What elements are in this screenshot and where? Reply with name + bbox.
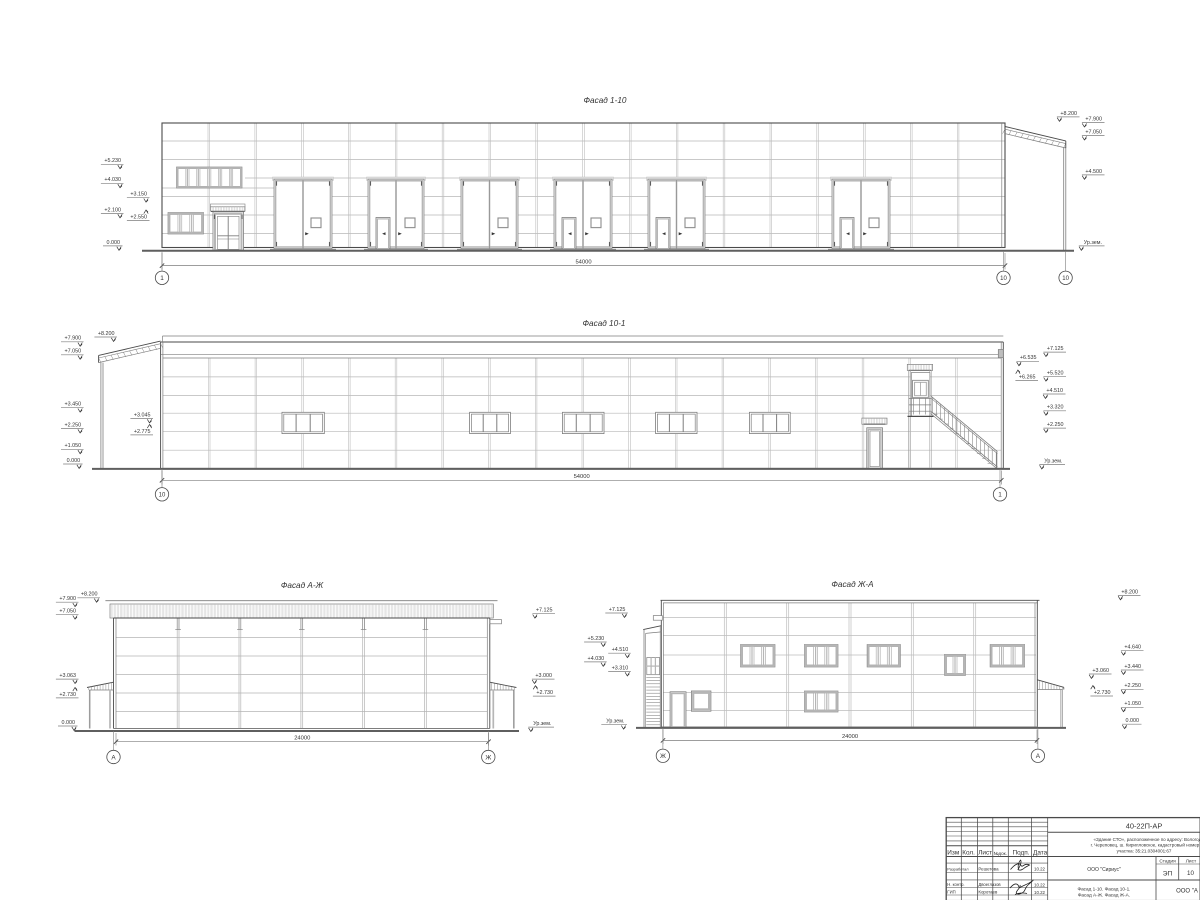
svg-text:+7.900: +7.900 [64, 336, 81, 342]
svg-text:Ур.зем.: Ур.зем. [606, 719, 624, 725]
svg-text:Изм: Изм [947, 849, 959, 856]
svg-text:+3.320: +3.320 [1047, 405, 1064, 411]
svg-text:10.22: 10.22 [1034, 890, 1046, 895]
svg-text:Лист: Лист [1186, 858, 1197, 864]
svg-text:10: 10 [1062, 276, 1069, 282]
svg-text:А: А [111, 754, 116, 761]
svg-text:г. Череповец, ш. Кирилловское,: г. Череповец, ш. Кирилловское, кадастров… [1091, 842, 1200, 848]
svg-text:+3.060: +3.060 [1092, 668, 1109, 674]
svg-text:+2.250: +2.250 [1124, 683, 1141, 689]
svg-text:54000: 54000 [575, 259, 591, 265]
svg-text:+2.730: +2.730 [59, 692, 76, 698]
svg-text:№док.: №док. [994, 851, 1007, 856]
svg-text:+7.125: +7.125 [536, 608, 553, 614]
svg-text:Фасад А-Ж: Фасад А-Ж [281, 581, 324, 590]
svg-text:+7.050: +7.050 [1085, 130, 1102, 136]
svg-text:+8.200: +8.200 [81, 592, 98, 598]
svg-text:ООО "А: ООО "А [1176, 888, 1198, 894]
svg-text:0.000: 0.000 [107, 240, 121, 246]
svg-text:24000: 24000 [842, 734, 858, 740]
svg-text:ЭП: ЭП [1163, 870, 1173, 877]
svg-text:+7.050: +7.050 [59, 609, 76, 615]
svg-text:Ж: Ж [660, 753, 666, 760]
svg-text:Ур.зем.: Ур.зем. [1084, 240, 1102, 246]
svg-text:+5.230: +5.230 [104, 158, 121, 164]
svg-text:Ур.зем.: Ур.зем. [533, 721, 551, 727]
svg-text:Н. контр.: Н. контр. [947, 882, 964, 887]
svg-text:Стадия: Стадия [1159, 858, 1176, 864]
svg-text:Фасад 10-1: Фасад 10-1 [583, 319, 626, 328]
svg-text:+6.265: +6.265 [1019, 374, 1036, 380]
svg-text:+7.125: +7.125 [1047, 346, 1064, 352]
svg-text:10.22: 10.22 [1034, 867, 1046, 872]
svg-text:+4.500: +4.500 [1085, 169, 1102, 175]
svg-text:+2.250: +2.250 [64, 422, 81, 428]
svg-text:10: 10 [1000, 276, 1007, 282]
svg-text:Фасад Ж-А: Фасад Ж-А [831, 580, 874, 589]
svg-text:+2.775: +2.775 [134, 429, 151, 435]
svg-text:+4.640: +4.640 [1124, 645, 1141, 651]
svg-text:Подп.: Подп. [1013, 849, 1030, 856]
svg-text:Разработал: Разработал [947, 867, 968, 872]
svg-text:+3.310: +3.310 [612, 665, 629, 671]
svg-text:Фасад 1-10. Фасад 10-1.: Фасад 1-10. Фасад 10-1. [1078, 887, 1131, 892]
svg-text:+3.450: +3.450 [64, 402, 81, 408]
svg-text:+7.050: +7.050 [64, 349, 81, 355]
svg-text:+3.045: +3.045 [134, 412, 151, 418]
svg-text:Фасад 1-10: Фасад 1-10 [584, 96, 627, 105]
svg-text:Коротаев: Коротаев [978, 890, 998, 895]
svg-text:ООО "Сириус": ООО "Сириус" [1087, 867, 1121, 873]
svg-text:+4.030: +4.030 [104, 177, 121, 183]
svg-text:+3.440: +3.440 [1124, 664, 1141, 670]
svg-text:10.22: 10.22 [1034, 882, 1046, 887]
svg-text:+2.730: +2.730 [1094, 690, 1111, 696]
svg-text:+2.550: +2.550 [130, 214, 147, 220]
svg-text:+3.150: +3.150 [130, 192, 147, 198]
svg-text:+2.730: +2.730 [536, 690, 553, 696]
svg-text:24000: 24000 [294, 736, 310, 742]
svg-text:10: 10 [1187, 870, 1194, 877]
svg-text:1: 1 [998, 492, 1002, 499]
svg-text:участка: 35:21.0304001:67: участка: 35:21.0304001:67 [1117, 848, 1172, 853]
svg-text:+5.230: +5.230 [588, 636, 605, 642]
svg-text:+2.100: +2.100 [104, 207, 121, 213]
svg-text:+7.900: +7.900 [1085, 117, 1102, 123]
svg-text:0.000: 0.000 [1126, 718, 1140, 724]
svg-text:+8.200: +8.200 [98, 331, 115, 337]
svg-text:1: 1 [160, 275, 164, 282]
svg-text:0.000: 0.000 [62, 720, 76, 726]
svg-text:А: А [1036, 753, 1041, 760]
svg-text:+8.200: +8.200 [1121, 589, 1138, 595]
svg-text:0.000: 0.000 [67, 458, 81, 464]
svg-text:Ж: Ж [485, 754, 491, 761]
svg-text:+4.030: +4.030 [588, 656, 605, 662]
svg-text:10: 10 [159, 493, 166, 499]
svg-text:+3.063: +3.063 [59, 673, 76, 679]
svg-text:+2.250: +2.250 [1047, 422, 1064, 428]
svg-text:+8.200: +8.200 [1060, 111, 1077, 117]
svg-text:+7.900: +7.900 [59, 596, 76, 602]
svg-text:54000: 54000 [574, 474, 590, 480]
svg-text:Ур.зем.: Ур.зем. [1044, 458, 1062, 464]
svg-text:Решетова: Решетова [978, 867, 999, 872]
svg-text:Лист: Лист [978, 849, 992, 856]
svg-text:+3.000: +3.000 [535, 673, 552, 679]
svg-text:+1.050: +1.050 [1124, 701, 1141, 707]
svg-text:Кол.: Кол. [962, 849, 975, 856]
svg-text:«Здание СТО», расположенное по: «Здание СТО», расположенное по адресу: В… [1094, 837, 1200, 842]
svg-text:+7.125: +7.125 [609, 607, 626, 613]
svg-text:+1.050: +1.050 [64, 443, 81, 449]
svg-text:40-22П-АР: 40-22П-АР [1126, 822, 1163, 831]
svg-text:+4.510: +4.510 [1046, 388, 1063, 394]
svg-text:Двоеглазов: Двоеглазов [978, 882, 1001, 887]
svg-text:ГИП: ГИП [947, 890, 955, 895]
svg-text:+4.510: +4.510 [612, 647, 629, 653]
svg-text:Дата: Дата [1033, 849, 1048, 856]
svg-text:+5.520: +5.520 [1047, 371, 1064, 377]
svg-text:+6.535: +6.535 [1020, 355, 1037, 361]
svg-text:Фасад А-Ж. Фасад Ж-А.: Фасад А-Ж. Фасад Ж-А. [1078, 893, 1130, 898]
